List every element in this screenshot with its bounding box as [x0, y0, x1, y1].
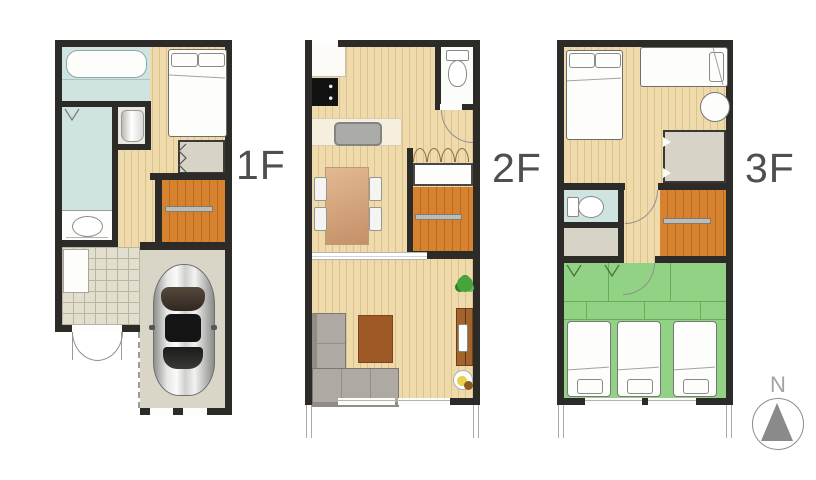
- car-rear-window: [163, 347, 203, 369]
- tatami-room: [564, 263, 726, 398]
- staircase: [162, 180, 225, 242]
- pillow: [569, 53, 595, 68]
- wall: [564, 183, 625, 190]
- car-mirror: [149, 325, 155, 330]
- folding-door-icon: [64, 108, 80, 121]
- wall: [150, 173, 225, 180]
- compass-needle-icon: [761, 403, 793, 441]
- chair: [369, 207, 382, 231]
- tatami-seam: [586, 301, 587, 319]
- handrail: [165, 206, 213, 212]
- chair: [369, 177, 382, 201]
- balcony-rail: [473, 405, 479, 438]
- staircase: [660, 190, 726, 256]
- closet: [413, 163, 473, 186]
- wall: [658, 183, 726, 190]
- chair: [314, 177, 327, 201]
- stool-icon: [464, 381, 473, 390]
- duvet-fold-line: [567, 78, 621, 82]
- single-bed: [640, 47, 728, 87]
- window: [312, 40, 338, 47]
- laundry-nook: [118, 107, 145, 144]
- wall: [655, 256, 726, 263]
- staircase: [413, 187, 473, 251]
- toilet-icon: [448, 60, 467, 87]
- closet: [663, 130, 726, 183]
- floor-label-3f: 3F: [745, 145, 795, 192]
- plant-icon: [457, 276, 473, 292]
- bathtub: [66, 50, 147, 78]
- vanity-line: [66, 237, 108, 238]
- sink-icon: [334, 122, 382, 146]
- refrigerator-space: [312, 47, 346, 77]
- handrail: [415, 214, 462, 220]
- floor-2f-outline: [305, 40, 480, 405]
- wall: [62, 240, 118, 247]
- garage-door-mark: [150, 408, 173, 415]
- wall: [145, 101, 151, 150]
- balcony-rail: [726, 405, 732, 438]
- toilet-room: [441, 47, 473, 104]
- pillow: [595, 53, 621, 68]
- door-swing-arc: [441, 110, 473, 143]
- futon-fold-line: [568, 367, 609, 371]
- pillow: [171, 53, 198, 67]
- fusuma-door-icon: [566, 264, 582, 277]
- sliding-partition: [312, 252, 427, 260]
- folding-doors: [413, 148, 473, 162]
- futon: [617, 321, 661, 397]
- futon-fold-line: [674, 367, 715, 371]
- pillow: [627, 379, 653, 394]
- car-windshield: [161, 287, 205, 311]
- folding-door-arc: [427, 148, 441, 162]
- tatami-seam: [564, 301, 726, 302]
- pillow: [577, 379, 603, 394]
- pillow: [198, 53, 225, 67]
- bath-deck-line: [62, 79, 150, 80]
- folding-door-arc: [455, 148, 469, 162]
- tatami-seam: [644, 301, 645, 319]
- floor-3f-outline: [557, 40, 733, 405]
- coffee-table: [358, 315, 393, 363]
- folding-door-arc: [413, 148, 427, 162]
- wall: [427, 252, 473, 259]
- tv-icon: [458, 324, 468, 352]
- fusuma-door-icon: [604, 264, 620, 277]
- cooktop-icon: [312, 78, 338, 106]
- compass-north-label: N: [766, 372, 790, 398]
- window: [398, 398, 450, 405]
- balcony-rail: [306, 405, 312, 438]
- washing-machine-icon: [121, 110, 144, 142]
- bathroom: [62, 47, 150, 101]
- door-mark-icon: [663, 168, 671, 178]
- pillow: [683, 379, 709, 394]
- double-bed: [168, 49, 227, 137]
- pillow: [709, 52, 724, 82]
- wall: [564, 256, 623, 263]
- wall: [155, 180, 162, 242]
- basin-icon: [72, 216, 103, 237]
- tatami-seam: [670, 263, 671, 301]
- car-icon: [153, 264, 215, 396]
- dining-table: [325, 167, 369, 245]
- door-swing-arc: [625, 190, 658, 224]
- entrance-hall: [62, 247, 140, 325]
- door-mark-icon: [663, 137, 671, 147]
- tatami-seam: [564, 319, 726, 320]
- door-swing-arc: [97, 332, 123, 361]
- handrail: [663, 218, 711, 224]
- duvet-fold-line: [169, 75, 225, 79]
- floor-plan: 1F 2F 3F N: [0, 0, 816, 480]
- window: [585, 398, 642, 405]
- garage-open-edge: [138, 332, 140, 408]
- garage-door-mark: [183, 408, 207, 415]
- futon: [567, 321, 611, 397]
- floor-label-2f: 2F: [492, 145, 542, 192]
- double-bed: [566, 50, 623, 140]
- vanity-counter: [62, 210, 112, 241]
- car-mirror: [211, 325, 217, 330]
- wall: [618, 190, 624, 263]
- washroom: [62, 107, 112, 240]
- shoe-cabinet: [63, 249, 89, 293]
- round-stool-icon: [700, 92, 730, 122]
- door-swing-arc: [72, 332, 98, 361]
- folding-door-icon: [178, 143, 188, 173]
- toilet-room: [564, 190, 620, 222]
- toilet-icon: [578, 196, 604, 218]
- folding-door-arc: [441, 148, 455, 162]
- balcony-rail: [558, 405, 564, 438]
- storage: [564, 228, 618, 256]
- chair: [314, 207, 327, 231]
- partition-track: [312, 256, 427, 257]
- tv-board: [456, 308, 473, 366]
- door-swing-arc: [623, 263, 655, 295]
- window: [648, 398, 696, 405]
- futon-fold-line: [618, 367, 659, 371]
- floor-label-1f: 1F: [236, 142, 286, 189]
- closet: [178, 140, 225, 174]
- car-roof: [165, 314, 201, 342]
- window: [338, 398, 395, 405]
- kitchen-counter: [312, 118, 402, 146]
- tatami-seam: [700, 301, 701, 319]
- door-opening: [72, 325, 122, 332]
- futon: [673, 321, 717, 397]
- garage: [140, 243, 232, 415]
